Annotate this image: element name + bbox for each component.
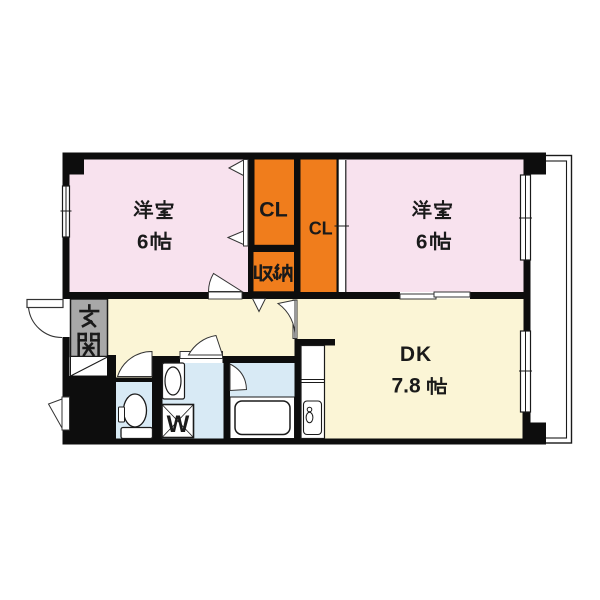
svg-text:6: 6 (416, 231, 427, 254)
svg-text:CL: CL (309, 219, 333, 239)
svg-text:DK: DK (400, 343, 432, 366)
svg-text:CL: CL (259, 198, 288, 222)
svg-text:6: 6 (137, 231, 148, 254)
svg-text:W: W (167, 411, 190, 438)
svg-text:7.8: 7.8 (392, 375, 422, 398)
